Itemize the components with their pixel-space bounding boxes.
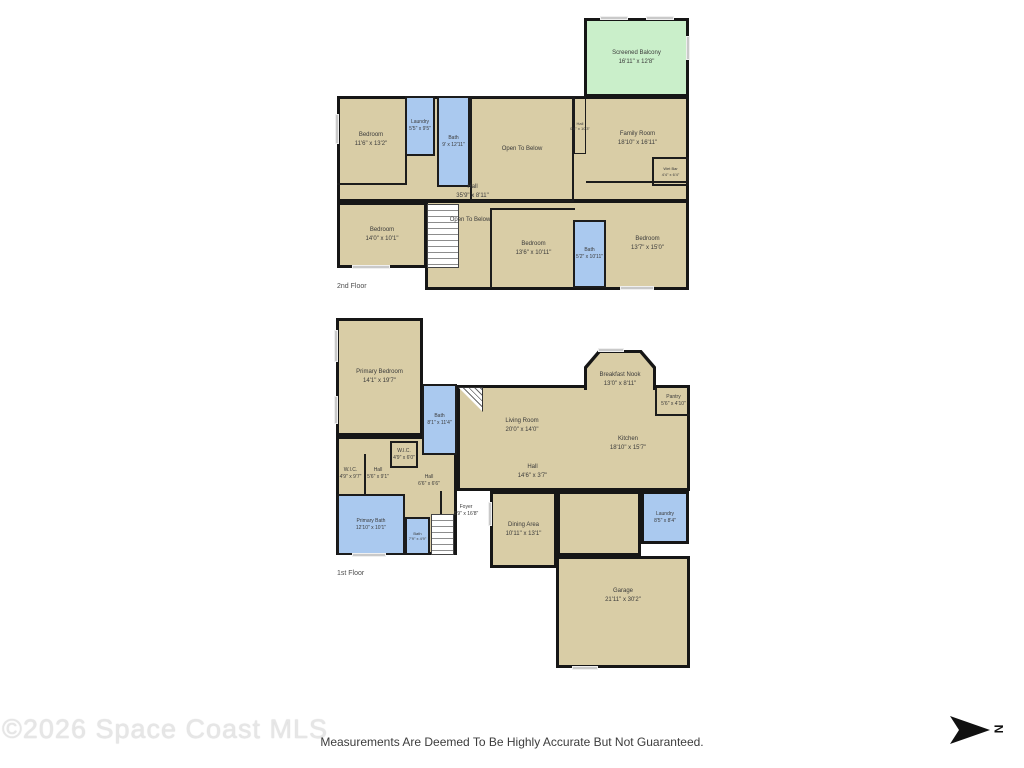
room-dining-area: Dining Area 10'11" x 13'1"	[490, 491, 557, 568]
room-dims: 20'0" x 14'0"	[506, 426, 539, 435]
room-name: Bath	[434, 413, 444, 420]
room-dims: 4'9" x 6'0"	[393, 455, 415, 462]
room-bedroom-3: Bedroom 13'6" x 10'11"	[490, 208, 575, 288]
room-breakfast-nook: Breakfast Nook 13'0" x 8'11"	[584, 372, 656, 388]
room-name: Dining Area	[508, 521, 539, 530]
room-living-room: Living Room 20'0" x 14'0"	[487, 418, 557, 434]
room-name: Laundry	[656, 511, 674, 518]
window-marker	[334, 330, 338, 362]
room-dims: 5'2" x 10'11"	[576, 254, 603, 261]
room-dims: 18'10" x 16'11"	[618, 139, 657, 148]
room-name: Hall	[374, 467, 383, 474]
window-marker	[600, 16, 628, 20]
room-dims: 10'11" x 13'1"	[506, 530, 542, 539]
room-bedroom-2: Bedroom 14'0" x 10'1"	[337, 202, 427, 268]
room-dims: 16'11" x 12'8"	[619, 58, 655, 67]
floor1-mid-strip-block	[557, 491, 641, 556]
room-name: Open To Below	[502, 145, 543, 154]
window-marker	[598, 348, 624, 352]
room-dims: 18'10" x 15'7"	[610, 444, 646, 453]
room-name: Garage	[613, 587, 633, 596]
room-dims: 14'1" x 19'7"	[363, 377, 396, 386]
window-marker	[334, 396, 338, 424]
room-bedroom-4: Bedroom 13'7" x 15'0"	[606, 199, 689, 288]
room-dims: 35'9" x 8'11"	[456, 192, 488, 201]
north-arrow: N	[950, 714, 1010, 748]
window-marker	[572, 666, 598, 670]
room-name: Breakfast Nook	[599, 371, 640, 380]
room-name: Bath	[448, 135, 458, 142]
room-bath-2f-a: Bath 9' x 12'11"	[437, 96, 470, 187]
room-bedroom-1: Bedroom 11'6" x 13'2"	[337, 96, 407, 185]
room-laundry-2f: Laundry 5'5" x 9'5"	[405, 96, 435, 156]
window-marker	[352, 265, 390, 269]
room-name: W.I.C.	[397, 448, 411, 455]
room-name: Screened Balcony	[612, 49, 661, 58]
north-arrow-icon	[950, 714, 990, 746]
room-dims: 8'1" x 11'4"	[427, 420, 451, 427]
window-marker	[488, 502, 492, 526]
room-dims: 4'4" x 6'4"	[662, 172, 680, 177]
room-name: Open To Below	[450, 216, 491, 225]
north-letter: N	[991, 725, 1005, 734]
room-name: Bedroom	[635, 235, 659, 244]
room-name: Kitchen	[618, 435, 638, 444]
room-dims: 5'5" x 9'5"	[409, 126, 431, 133]
room-name: Primary Bedroom	[356, 368, 403, 377]
room-name: Living Room	[505, 417, 538, 426]
room-dims: 8'9" x 16'8"	[454, 511, 479, 518]
disclaimer-text: Measurements Are Deemed To Be Highly Acc…	[0, 735, 1024, 749]
room-dims: 9' x 12'11"	[442, 142, 465, 149]
room-dims: 14'0" x 10'1"	[366, 235, 399, 244]
room-bath-1f-a: Bath 8'1" x 11'4"	[422, 384, 457, 455]
window-marker	[646, 16, 674, 20]
staircase-1f	[431, 514, 454, 555]
room-kitchen: Kitchen 18'10" x 15'7"	[592, 436, 664, 452]
room-dims: 14'6" x 3'7"	[518, 472, 548, 481]
room-wic-1: W.I.C. 4'9" x 9'7"	[337, 454, 366, 494]
room-garage: Garage 21'11" x 30'2"	[556, 556, 690, 636]
room-name: Foyer	[460, 504, 473, 511]
room-dims: 11'6" x 13'2"	[355, 140, 387, 149]
room-dims: 13'6" x 10'11"	[516, 249, 552, 258]
room-name: W.I.C.	[344, 467, 358, 474]
room-dims: 5'6" x 9'1"	[367, 474, 389, 481]
room-name: Primary Bath	[357, 518, 386, 525]
floor-label-1st: 1st Floor	[337, 570, 364, 577]
room-hall-1f-a: Hall 5'6" x 9'1"	[366, 454, 390, 494]
room-dims: 7'9" x 4'9"	[409, 536, 427, 541]
room-dims: 5'6" x 4'10"	[661, 401, 686, 408]
room-name: Hall	[467, 183, 477, 192]
room-name: Family Room	[620, 130, 655, 139]
room-screened-balcony: Screened Balcony 16'11" x 12'8"	[584, 18, 689, 97]
room-pantry: Pantry 5'6" x 4'10"	[655, 388, 690, 416]
room-name: Bedroom	[521, 240, 545, 249]
room-wet-bar: Wet Bar 4'4" x 6'4"	[652, 157, 689, 186]
room-hall-1f-c: Hall 14'6" x 3'7"	[505, 464, 560, 480]
room-name: Bath	[584, 247, 594, 254]
room-name: Bedroom	[359, 131, 383, 140]
room-primary-bath: Primary Bath 12'10" x 10'1"	[337, 494, 405, 555]
room-name: Pantry	[666, 394, 680, 401]
room-name: Bedroom	[370, 226, 394, 235]
floorplan-canvas: Screened Balcony 16'11" x 12'8" Bedroom …	[0, 0, 1024, 768]
room-dims: 13'0" x 8'11"	[604, 380, 636, 389]
window-marker	[335, 114, 339, 144]
window-marker	[352, 553, 386, 557]
room-dims: 12'10" x 10'1"	[356, 525, 386, 532]
room-name: Hall	[527, 463, 537, 472]
room-name: Hall	[425, 474, 434, 481]
floor-label-2nd: 2nd Floor	[337, 283, 367, 290]
room-bath-1f-b: Bath 7'9" x 4'9"	[405, 517, 430, 555]
room-wic-2: W.I.C. 4'9" x 6'0"	[390, 441, 418, 468]
window-marker	[686, 36, 690, 60]
room-dims: 8'5" x 8'4"	[654, 518, 676, 525]
room-dims: 6'6" x 6'6"	[418, 481, 440, 488]
room-primary-bedroom: Primary Bedroom 14'1" x 19'7"	[336, 318, 423, 436]
room-dims: 13'7" x 15'0"	[631, 244, 664, 253]
room-dims: 21'11" x 30'2"	[605, 596, 641, 605]
room-dims: 4'9" x 9'7"	[340, 474, 362, 481]
room-hall-2f: Hall 35'9" x 8'11"	[425, 184, 520, 200]
window-marker	[620, 286, 654, 290]
room-bath-2f-b: Bath 5'2" x 10'11"	[573, 220, 606, 288]
room-laundry-1f: Laundry 8'5" x 8'4"	[641, 491, 689, 544]
room-name: Laundry	[411, 119, 429, 126]
